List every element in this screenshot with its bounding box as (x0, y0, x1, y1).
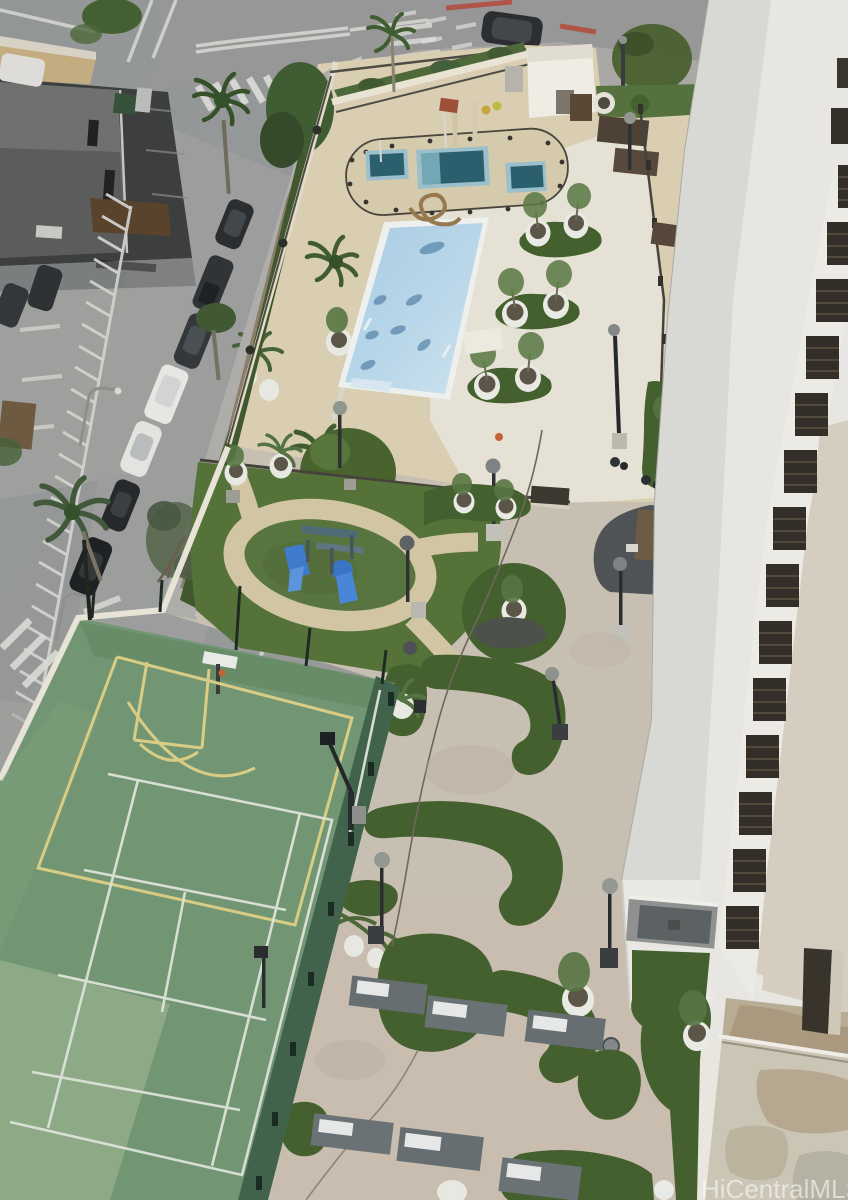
svg-text:HiCentralMLS: HiCentralMLS (701, 1174, 848, 1200)
